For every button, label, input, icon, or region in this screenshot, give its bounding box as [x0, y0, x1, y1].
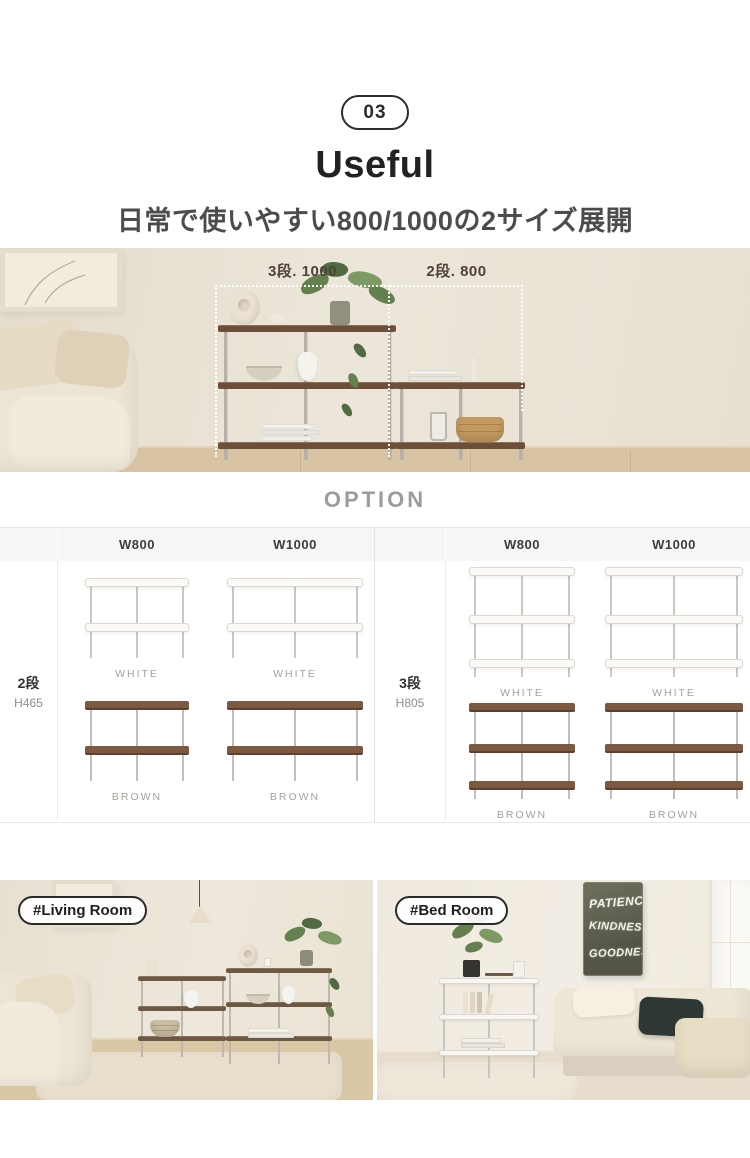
variant-cells: WHITE WHITE [446, 561, 750, 821]
tier-label: 2段 [18, 673, 40, 693]
wall-art-frame [0, 248, 122, 312]
shelf-board [439, 1050, 539, 1056]
option-body: 3段 H805 WHITE [375, 561, 750, 821]
shelf-board [469, 703, 575, 712]
shelf-leg [90, 705, 92, 781]
variant-caption: BROWN [497, 809, 547, 821]
shelf-leg [182, 582, 184, 658]
shelf-leg [136, 705, 138, 781]
option-header-row: W800 W1000 [375, 528, 750, 561]
shelf-board [138, 976, 226, 981]
canister [146, 960, 158, 975]
option-header-row: W800 W1000 [0, 528, 374, 561]
option-heading: OPTION [0, 487, 750, 513]
variant-caption: WHITE [273, 668, 317, 680]
sofa-pillow [53, 328, 130, 389]
shelf-thumbnail [85, 576, 189, 658]
col-header-w1000: W1000 [598, 528, 750, 561]
shelf-board [605, 781, 743, 790]
poster-line: GOODNESS [589, 946, 643, 960]
floor-plank [630, 450, 631, 472]
shelf-leg [356, 705, 358, 781]
variant-cell-3tier-w1000-brown: BROWN [598, 703, 750, 821]
bed-room-tag: #Bed Room [395, 896, 508, 925]
shelf-thumbnail [605, 567, 743, 677]
tier-label: 3段 [399, 673, 421, 693]
poster-line: KINDNESS [589, 920, 643, 934]
shelf-board [138, 1006, 226, 1011]
shelf-leg [229, 971, 231, 1064]
shelf-leg [278, 971, 280, 1064]
shelf-leg [182, 705, 184, 781]
book [470, 992, 475, 1013]
col-header-w800: W800 [446, 528, 598, 561]
basket-weave [458, 431, 502, 432]
shelf-leg [443, 981, 445, 1078]
col-header-w1000: W1000 [216, 528, 374, 561]
shelf-thumbnail [227, 576, 363, 658]
book [248, 1033, 294, 1038]
chalkboard-poster: PATIENCE KINDNESS GOODNESS [583, 882, 643, 976]
shelf-leg [294, 582, 296, 658]
pendant-lamp [188, 906, 212, 923]
shelf-board [395, 442, 525, 449]
variant-cell-3tier-w1000-white: WHITE [598, 567, 750, 699]
table-lamp [513, 961, 525, 978]
option-table-3tier: W800 W1000 3段 H805 WHITE [375, 528, 750, 822]
shelf-board [227, 746, 363, 755]
bed-pillow [572, 984, 636, 1018]
option-body: 2段 H465 WHITE [0, 561, 374, 821]
plant-pot [300, 950, 313, 966]
variant-row-brown: BROWN BROWN [446, 699, 750, 821]
living-room-tag: #Living Room [18, 896, 147, 925]
branch-art [5, 253, 117, 307]
shelf-board [469, 615, 575, 624]
dimension-box-800 [390, 285, 523, 411]
shelf-board [605, 615, 743, 624]
book [477, 992, 482, 1013]
variant-cell-2tier-w800-brown: BROWN [58, 699, 216, 803]
variant-cell-2tier-w1000-white: WHITE [216, 576, 374, 692]
variant-row-white: WHITE WHITE [58, 561, 374, 692]
shelf-board [226, 968, 332, 973]
draped-blanket [675, 1018, 750, 1078]
shelf-board [85, 746, 189, 755]
woven-basket [456, 417, 504, 442]
throw-blanket [6, 396, 130, 468]
row-label-3tier: 3段 H805 [375, 561, 446, 821]
hero-photo: 3段. 1000 2段. 800 [0, 248, 750, 472]
shelf-board [439, 978, 539, 984]
black-plant-pot [463, 960, 480, 977]
shelf-leg [232, 705, 234, 781]
shelf-board [85, 578, 189, 587]
shelf-board [469, 567, 575, 576]
window-mullion [712, 942, 750, 943]
dimension-label-800: 2段. 800 [390, 260, 523, 281]
shelf-board [85, 623, 189, 632]
shelf-leg [294, 705, 296, 781]
variant-caption: WHITE [115, 668, 159, 680]
small-glass [264, 958, 271, 967]
variant-caption: WHITE [500, 687, 544, 699]
shelf-board [469, 744, 575, 753]
shelf-board [469, 781, 575, 790]
shelf-thumbnail [227, 699, 363, 781]
variant-caption: BROWN [270, 791, 320, 803]
header-spacer [375, 528, 446, 561]
shelf-board [227, 701, 363, 710]
section-subtitle: 日常で使いやすい800/1000の2サイズ展開 [0, 199, 750, 238]
poster-line: PATIENCE [589, 893, 643, 911]
shelf-board [227, 578, 363, 587]
shelf-leg [232, 582, 234, 658]
variant-row-white: WHITE WHITE [446, 561, 750, 699]
shelf-leg [533, 981, 535, 1078]
bed-room-photo: PATIENCE KINDNESS GOODNESS [377, 880, 750, 1100]
floor-plank [470, 450, 471, 472]
shelf-leg [136, 582, 138, 658]
shelf-board [605, 703, 743, 712]
shelf-leg [356, 582, 358, 658]
donut-vase [238, 944, 258, 967]
option-table: W800 W1000 2段 H465 WHITE [0, 527, 750, 823]
variant-cells: WHITE WHITE [58, 561, 374, 821]
shelf-board [85, 701, 189, 710]
throw-blanket [0, 1002, 62, 1086]
shelf-thumbnail [605, 703, 743, 799]
variant-caption: BROWN [112, 791, 162, 803]
section-number-badge: 03 [341, 95, 408, 130]
book-stack [461, 1038, 505, 1049]
shelf-leg [181, 979, 183, 1057]
book-stack [248, 1028, 294, 1038]
rug [377, 1062, 577, 1100]
dimension-box-1000 [215, 285, 390, 457]
shelf-leg [90, 582, 92, 658]
shelf-board [227, 623, 363, 632]
tier-height: H465 [14, 696, 43, 710]
intro-section: 03 Useful 日常で使いやすい800/1000の2サイズ展開 [0, 0, 750, 238]
living-room-photo: #Living Room [0, 880, 373, 1100]
tier-height: H805 [396, 696, 425, 710]
col-header-w800: W800 [58, 528, 216, 561]
product-detail-page: 03 Useful 日常で使いやすい800/1000の2サイズ展開 [0, 0, 750, 1158]
shelf-leg [141, 979, 143, 1057]
header-spacer [0, 528, 58, 561]
dimension-label-1000: 3段. 1000 [215, 260, 390, 281]
shelf-leg [222, 979, 224, 1057]
variant-cell-2tier-w1000-brown: BROWN [216, 699, 374, 803]
shelf-board [439, 1014, 539, 1020]
pendant-cord [199, 880, 200, 907]
shelf-board [226, 1002, 332, 1007]
book [463, 992, 468, 1013]
row-label-2tier: 2段 H465 [0, 561, 58, 821]
shelf-board [605, 567, 743, 576]
shelf-thumbnail [85, 699, 189, 781]
basket-weave [458, 424, 502, 425]
tray [485, 973, 513, 976]
shelf-board [605, 659, 743, 668]
book [461, 1043, 505, 1048]
shelf-board [605, 744, 743, 753]
shelf-thumbnail [469, 703, 575, 799]
variant-caption: BROWN [649, 809, 699, 821]
variant-caption: WHITE [652, 687, 696, 699]
shelf-thumbnail [469, 567, 575, 677]
variant-cell-2tier-w800-white: WHITE [58, 576, 216, 692]
variant-cell-3tier-w800-brown: BROWN [446, 703, 598, 821]
shelf-board [138, 1036, 226, 1041]
variant-cell-3tier-w800-white: WHITE [446, 567, 598, 699]
option-table-2tier: W800 W1000 2段 H465 WHITE [0, 528, 375, 822]
shelf-board [469, 659, 575, 668]
glass-pitcher [430, 412, 447, 441]
variant-row-brown: BROWN BROWN [58, 692, 374, 803]
section-title: Useful [0, 144, 750, 187]
